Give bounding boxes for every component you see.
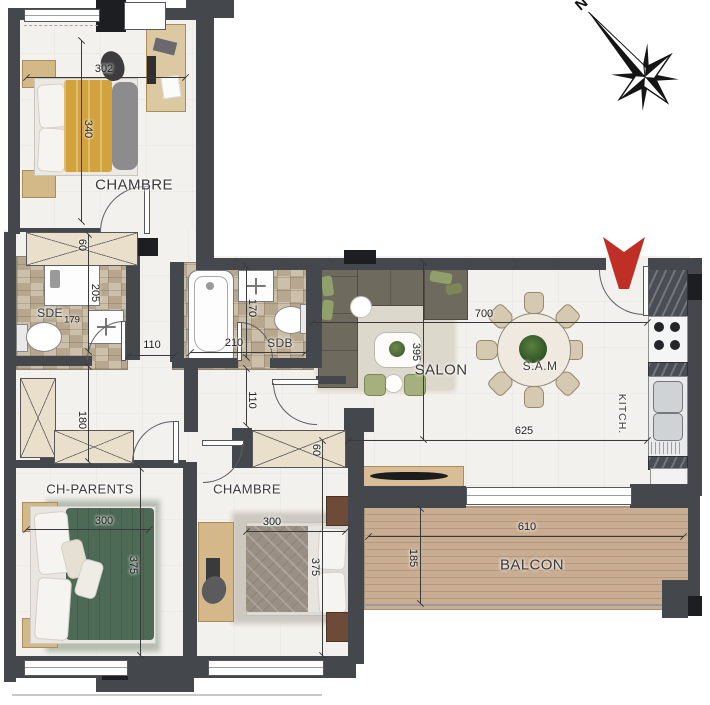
nightstand [326,612,350,642]
window-glass-line [209,667,323,668]
window-glass-line [25,667,127,668]
dim-110a: 110 [143,339,161,351]
window [208,660,324,676]
wall [184,362,198,432]
compass-north-spike [583,12,645,81]
wall [348,486,466,508]
wall [183,462,197,660]
dim-205: 205 [89,284,101,302]
room-label-chambre1: CHAMBRE [95,177,173,194]
wall [662,580,688,618]
plant-icon [389,341,405,357]
sliding-window [466,487,632,505]
dining-chair [524,386,544,408]
room-label-kitchen: KITCH. [616,394,628,434]
dim-line [26,77,186,78]
dim-395: 395 [410,343,422,361]
burner-icon [654,340,664,350]
wall [196,18,214,258]
tv [370,472,448,480]
room-label-balcon: BALCON [500,557,564,574]
window [24,660,128,676]
wardrobe [54,430,134,464]
side-table [384,374,403,393]
dim-375b: 375 [309,558,321,576]
wall [348,430,364,664]
wall [4,232,16,682]
compass-north-label: N [572,0,591,14]
wall-pier [136,238,158,256]
dim-line [420,508,421,604]
room-label-chambre2: CHAMBRE [213,482,281,497]
faucet-icon [239,271,273,301]
dim-line [322,440,323,656]
wall-pier [688,274,702,300]
room-label-sam: S.A.M [523,359,558,373]
wall-pier [344,250,376,264]
pillow [37,127,67,172]
sink-drainboard [651,442,683,454]
wardrobe [20,378,56,458]
dining-chair [524,292,544,314]
dim-170: 170 [246,299,258,317]
dining-chair [476,340,498,360]
dim-line [423,262,424,440]
wall-pier [688,596,702,616]
room-label-sdb: SDB [267,336,293,350]
dim-60a: 60 [76,239,88,251]
wall-pier [96,0,126,32]
entry-arrow-icon [602,237,646,289]
dim-300a: 300 [95,515,113,527]
paper [161,75,182,99]
dim-line [140,468,141,656]
pillow [34,577,72,641]
dim-700: 700 [475,308,493,320]
side-table [350,296,372,318]
bathtub-drain [206,282,214,290]
dim-line [348,440,648,441]
burner-icon [654,322,664,332]
dim-185: 185 [407,549,419,567]
sofa-cushion [321,299,334,320]
dim-line [26,529,150,530]
compass-north-spike [589,8,651,77]
blanket-roll [112,82,138,170]
nightstand [326,496,350,526]
duvet [246,526,310,612]
site-line [12,694,322,696]
dim-60b: 60 [310,444,322,456]
dim-375a: 375 [127,556,139,574]
wall [8,18,20,234]
window-dash-line [24,25,98,26]
washbasin [238,270,274,302]
wardrobe [252,430,346,468]
dim-180: 180 [76,411,88,429]
shaft-box [124,2,166,30]
dim-210: 210 [225,337,243,349]
wall [172,358,238,368]
balcony-railing [364,604,688,606]
wall [196,258,606,270]
dim-300b: 300 [263,516,281,528]
window-glass-line [25,15,99,16]
dim-625: 625 [515,425,533,437]
room-label-ch-parents: CH-PARENTS [46,482,134,497]
sink-basin [653,381,683,413]
wall [316,376,346,384]
burner-icon [670,322,680,332]
wall [630,484,688,508]
wall [306,262,322,368]
compass-rose-icon: N [560,0,710,135]
wall [16,356,92,366]
dim-line [246,531,346,532]
burner-icon [670,340,680,350]
entry-arrow-shape [603,237,645,289]
monitor [147,56,156,84]
toilet-bowl [26,322,62,352]
dim-179: 179 [64,315,80,326]
wall [186,0,234,18]
room-label-sde: SDE [37,306,63,320]
wall [270,358,322,368]
window [24,9,100,22]
pouf [364,374,386,396]
floor-plan: 302 340 60 205 179 110 170 210 110 180 7… [0,0,710,705]
shower-drain [50,270,60,288]
kitchen-counter [648,266,688,318]
window-glass-line [467,495,631,496]
wall [170,262,184,362]
dim-610: 610 [518,521,536,533]
dim-302: 302 [95,63,113,75]
dim-line [88,366,89,462]
dim-line [128,355,175,356]
sink-basin [653,413,683,441]
dim-line [312,322,648,323]
wall [126,256,140,360]
room-label-salon: SALON [415,362,468,379]
dim-line [368,536,684,537]
dim-110b: 110 [246,391,258,409]
dim-line [190,352,306,353]
pillow [36,83,67,129]
dim-340: 340 [82,120,94,138]
